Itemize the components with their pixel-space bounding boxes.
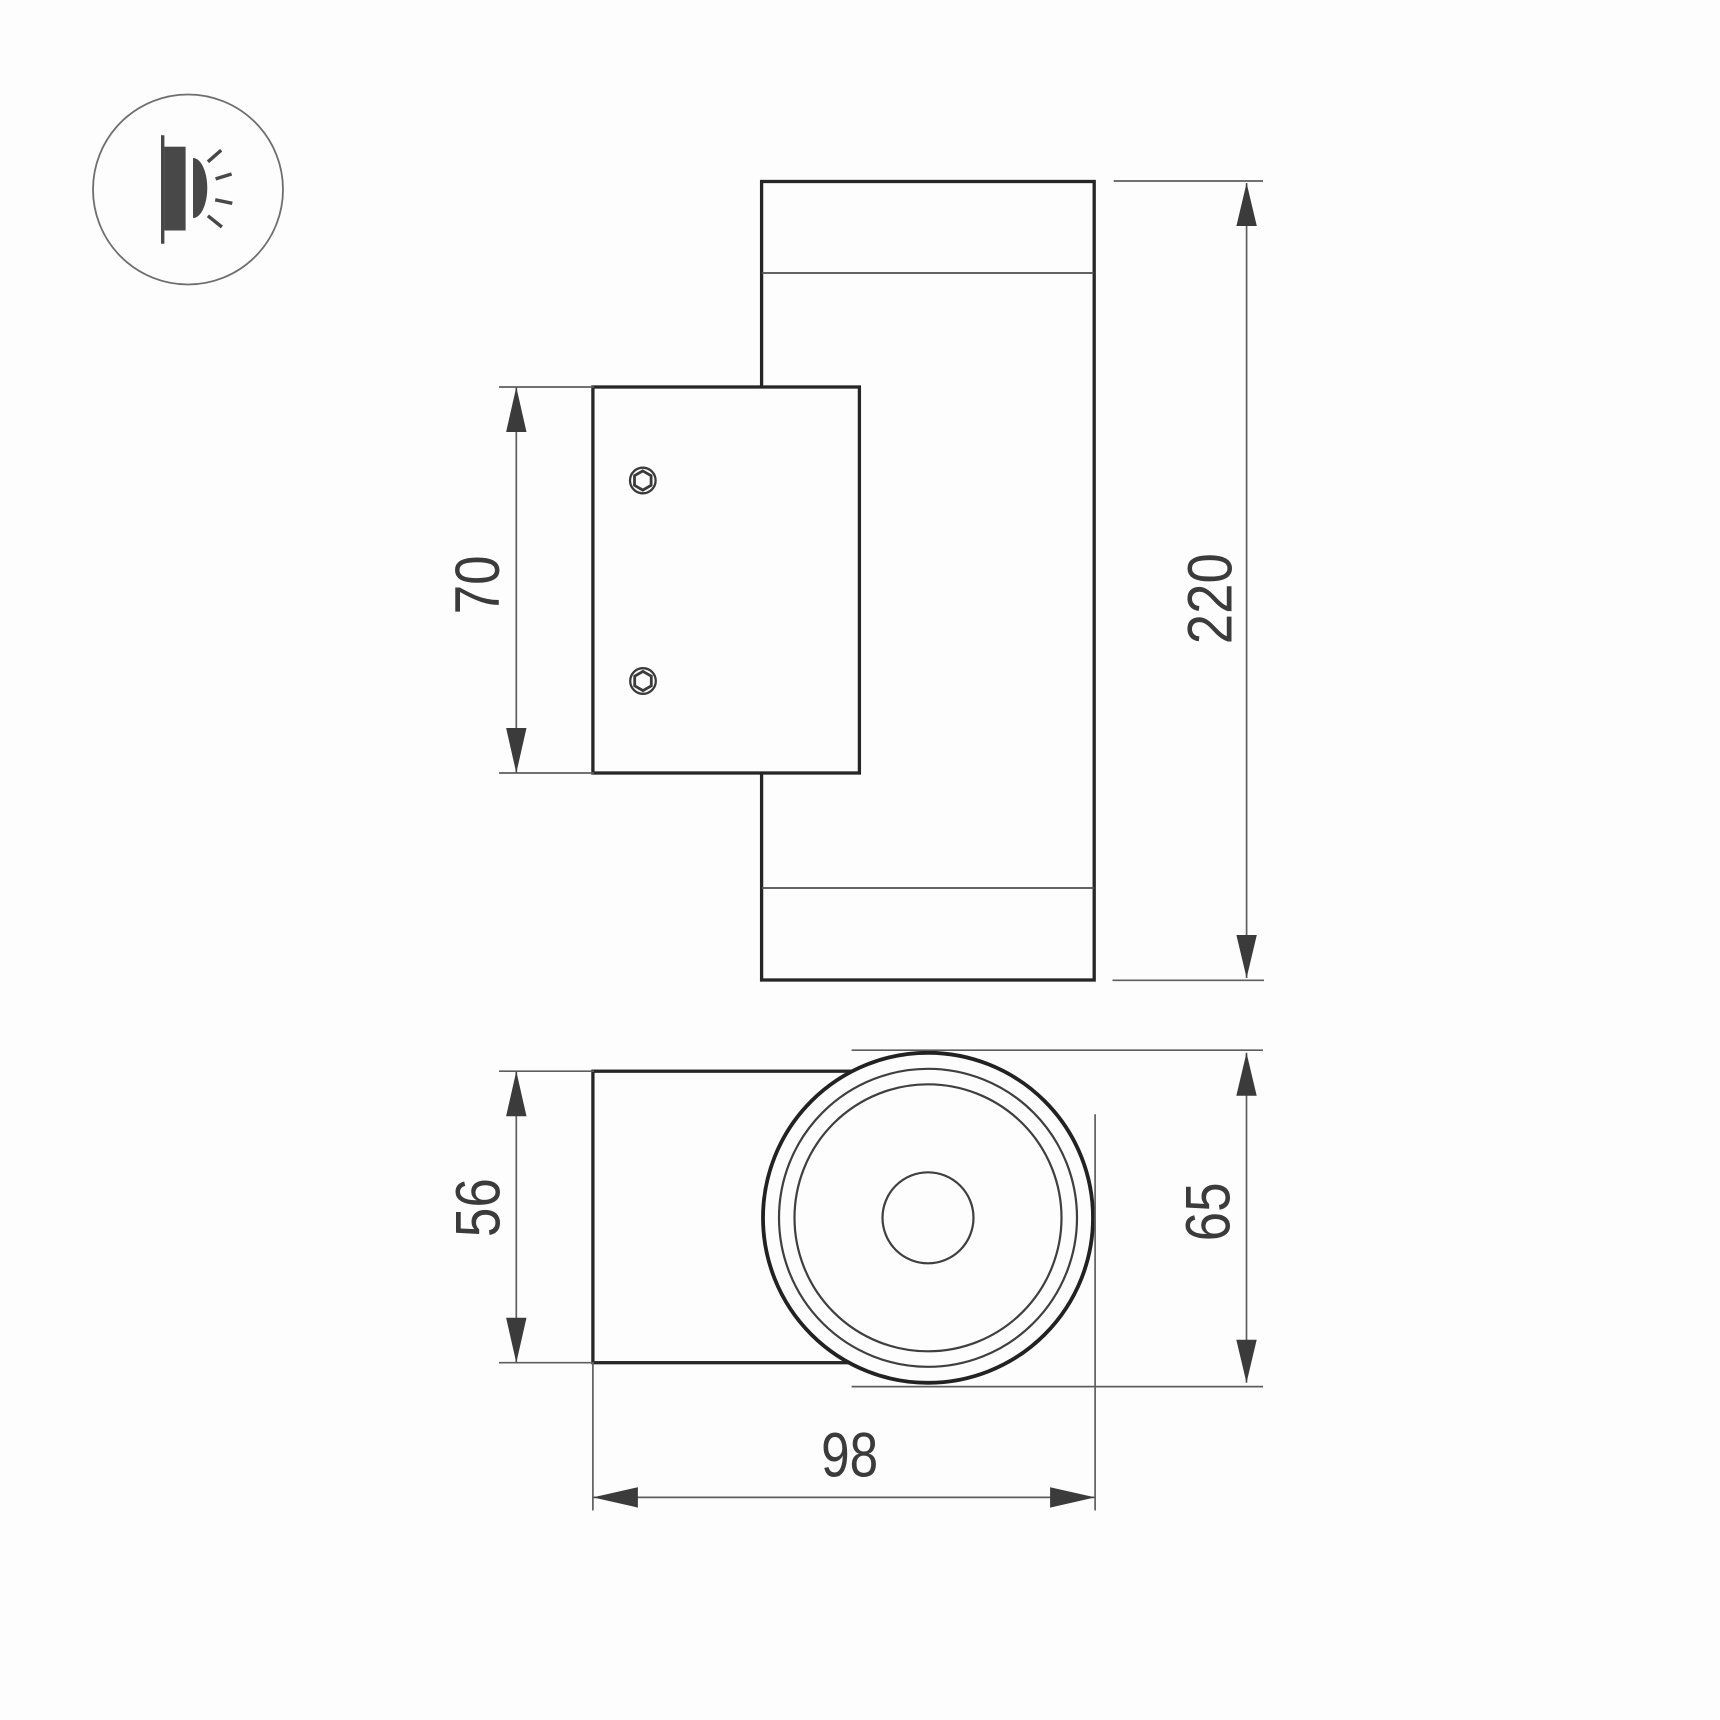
svg-text:65: 65 xyxy=(1173,1182,1243,1241)
svg-text:98: 98 xyxy=(821,1421,878,1491)
svg-text:56: 56 xyxy=(443,1178,513,1237)
svg-text:70: 70 xyxy=(443,555,513,614)
svg-text:220: 220 xyxy=(1176,553,1246,644)
